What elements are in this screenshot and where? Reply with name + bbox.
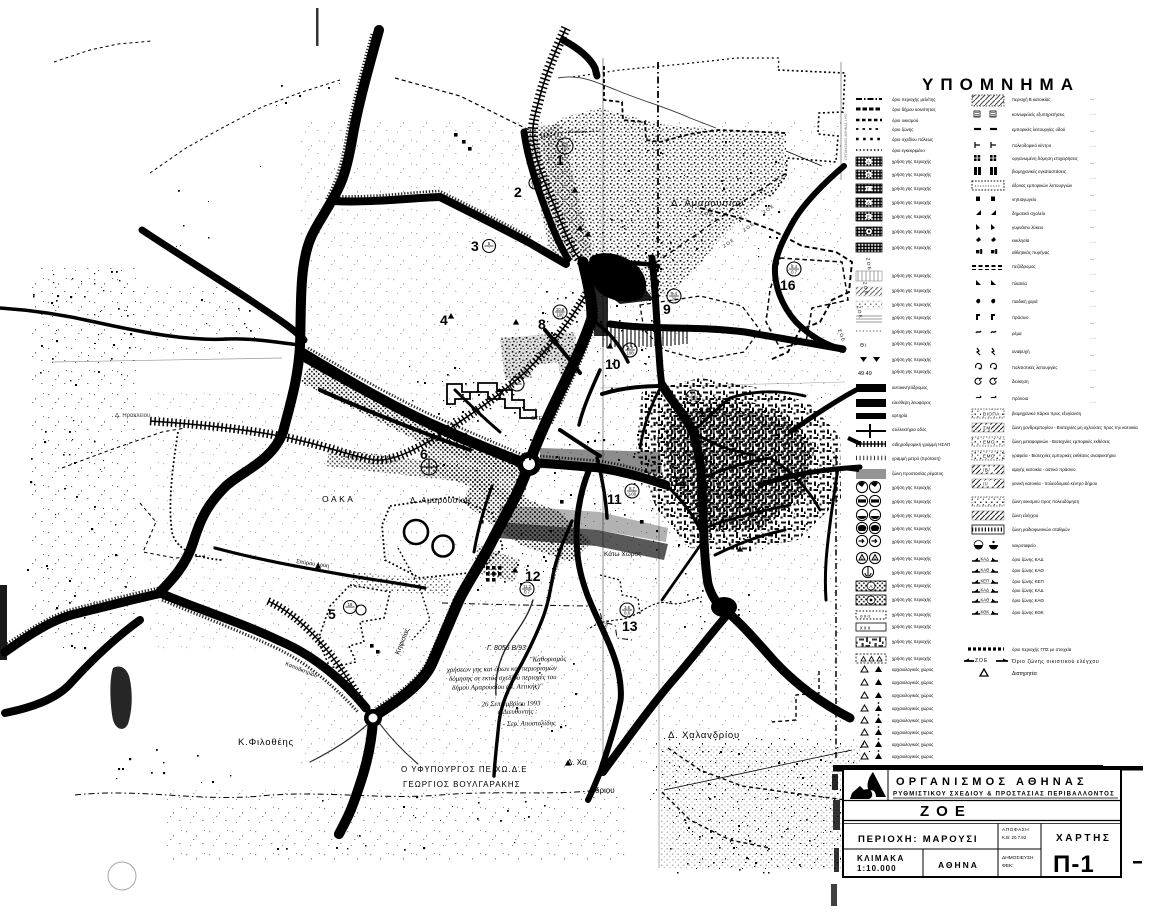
svg-text:ΚΘΚ: ΚΘΚ — [981, 609, 990, 614]
svg-text:— ·: — · — [1090, 128, 1096, 133]
svg-text:100: 100 — [532, 183, 540, 188]
svg-text:100: 100 — [627, 350, 635, 355]
svg-text:· · ·: · · · — [1090, 400, 1096, 405]
svg-text:παιδική χαρά: παιδική χαρά — [1012, 299, 1038, 304]
svg-text:— ·: — · — [1090, 192, 1096, 197]
svg-text:· · ·: · · · — [1090, 368, 1096, 373]
svg-text:αρχαιολογικός χώρος: αρχαιολογικός χώρος — [892, 730, 933, 735]
svg-text:αμιγής κατοικία - αστικό πράσι: αμιγής κατοικία - αστικό πράσινο — [1012, 467, 1076, 472]
svg-text:ΓΕΩΡΓΙΟΣ ΒΟΥΛΓΑΡΑΚΗΣ: ΓΕΩΡΓΙΟΣ ΒΟΥΛΓΑΡΑΚΗΣ — [403, 780, 521, 789]
svg-text:δημοτικό σχολείο: δημοτικό σχολείο — [1012, 211, 1046, 216]
svg-text:E: E — [867, 215, 870, 221]
svg-text:χρήση γης περιοχής: χρήση γης περιοχής — [892, 357, 931, 362]
svg-text:όριο ζώνης ΚΕΠ: όριο ζώνης ΚΕΠ — [1012, 579, 1044, 584]
svg-text:χρήση γης περιοχής: χρήση γης περιοχής — [892, 499, 931, 504]
svg-text:— ·: — · — [1090, 320, 1096, 325]
svg-text:διοίκηση: διοίκηση — [1012, 379, 1029, 384]
svg-text:8: 8 — [538, 316, 546, 332]
svg-text:ΚΑΔ: ΚΑΔ — [981, 556, 990, 561]
svg-text:αυτοκινητόδρομος: αυτοκινητόδρομος — [892, 385, 928, 390]
svg-text:Κάτω Χώρος: Κάτω Χώρος — [604, 550, 641, 558]
svg-text:4: 4 — [440, 312, 448, 328]
svg-text:· · ·: · · · — [1090, 144, 1096, 149]
svg-text:ΟΤΕ: ΟΤΕ — [531, 416, 543, 422]
svg-text:Κ.Β: 20.7.92: Κ.Β: 20.7.92 — [1002, 835, 1027, 840]
svg-text:"Καθορισμός: "Καθορισμός — [530, 655, 567, 664]
svg-text:σιδηροδρομική γραμμή ΗΣΑΠ: σιδηροδρομική γραμμή ΗΣΑΠ — [892, 442, 950, 447]
svg-text:ΥΠΟΜΝΗΜΑ: ΥΠΟΜΝΗΜΑ — [922, 75, 1080, 94]
svg-text:ρέμα: ρέμα — [1012, 331, 1022, 336]
svg-text:γραφεία - Βιοτεχνίες εμπορικές: γραφεία - Βιοτεχνίες εμπορικές εκθέσεις … — [1012, 453, 1116, 458]
svg-text:ΑΠΟΦΑΣΗ: ΑΠΟΦΑΣΗ — [1002, 827, 1029, 833]
svg-text:· · ·: · · · — [1090, 176, 1096, 181]
svg-text:γενική κατοικία - πολεοδομικό: γενική κατοικία - πολεοδομικό κέντρο δήμ… — [1012, 481, 1098, 486]
svg-text:Δ. Ηρακλείου: Δ. Ηρακλείου — [115, 413, 150, 419]
svg-text:Διατηρητέα: Διατηρητέα — [1012, 670, 1037, 677]
svg-text:100: 100 — [557, 312, 565, 317]
svg-text:18: 18 — [348, 602, 353, 607]
svg-text:ζώνη μεταφορικών - Βιοτεχνίες: ζώνη μεταφορικών - Βιοτεχνίες εμπορικές … — [1012, 439, 1110, 444]
svg-text:— ·: — · — [1090, 256, 1096, 261]
svg-text:πεζόδρομος: πεζόδρομος — [1012, 264, 1036, 269]
svg-text:χρήση γης περιοχής: χρήση γης περιοχής — [892, 556, 931, 561]
svg-text:ΦΕΚ:: ΦΕΚ: — [1002, 863, 1014, 869]
svg-text:αρχαιολογικός χώρος: αρχαιολογικός χώρος — [892, 667, 933, 672]
svg-text:5: 5 — [328, 606, 336, 622]
svg-text:0.6: 0.6 — [624, 610, 630, 615]
svg-text:0.7: 0.7 — [791, 269, 797, 274]
svg-text:χρήση γης περιοχής: χρήση γης περιοχής — [892, 583, 931, 588]
svg-text:χρήση γης περιοχής: χρήση γης περιοχής — [892, 273, 931, 278]
svg-text:ζώνη ελέγχου: ζώνη ελέγχου — [1012, 513, 1039, 518]
svg-text:χρήση γης περιοχής: χρήση γης περιοχής — [892, 539, 931, 544]
svg-text:όριο σχεδίου πόλεως: όριο σχεδίου πόλεως — [892, 137, 933, 142]
svg-text:όριο ζώνης ΚΑΔ: όριο ζώνης ΚΑΔ — [1012, 588, 1043, 593]
svg-text:χρήση γης περιοχής: χρήση γης περιοχής — [892, 200, 931, 205]
svg-text:ΠΕΡΙΟΧΗ: ΜΑΡΟΥΣΙ: ΠΕΡΙΟΧΗ: ΜΑΡΟΥΣΙ — [858, 834, 978, 845]
svg-text:Όριο ζώνης οικιστικού ελέγχ: Όριο ζώνης οικιστικού ελέγχου — [1011, 658, 1099, 665]
svg-text:10.8: 10.8 — [556, 307, 565, 312]
svg-text:όριο ζώνης ΚΘΚ: όριο ζώνης ΚΘΚ — [1012, 610, 1044, 615]
svg-text:ΚΛΙΜΑΚΑ: ΚΛΙΜΑΚΑ — [857, 854, 905, 863]
svg-text:7.2: 7.2 — [690, 392, 696, 397]
svg-text:· · ·: · · · — [1090, 240, 1096, 245]
svg-text:όριο περιοχής μελέτης: όριο περιοχής μελέτης — [892, 97, 935, 102]
svg-text:βιομηχανικό πάρκο προς εξυγίαν: βιομηχανικό πάρκο προς εξυγίανση — [1012, 411, 1082, 416]
svg-text:χρήση γης περιοχής: χρήση γης περιοχής — [892, 302, 931, 307]
svg-text:ΠΕΥΚΕΛΙΑ: ΠΕΥΚΕΛΙΑ — [566, 129, 586, 134]
svg-text:ζώνη χονδρεμπορίου - Βιοτεχνίε: ζώνη χονδρεμπορίου - Βιοτεχνίες μη οχλού… — [1012, 425, 1138, 430]
svg-text:αρχαιολογικός χώρος: αρχαιολογικός χώρος — [892, 754, 933, 759]
svg-text:αρχαιολογικός χώρος: αρχαιολογικός χώρος — [892, 742, 933, 747]
svg-text:11.9: 11.9 — [531, 178, 540, 183]
svg-text:χρήση γης περιοχής: χρήση γης περιοχής — [892, 485, 931, 490]
svg-text:11: 11 — [607, 491, 622, 507]
svg-text:όριο ζώνης ΚΑΘ: όριο ζώνης ΚΑΘ — [1012, 568, 1044, 573]
svg-text:Θ i: Θ i — [860, 343, 866, 349]
svg-text:αρχαιολογικός χώρος: αρχαιολογικός χώρος — [892, 706, 933, 711]
svg-text:ζώνη ραδιοφωνικών σταθμών: ζώνη ραδιοφωνικών σταθμών — [1012, 527, 1071, 532]
svg-text:A: A — [861, 556, 864, 561]
svg-text:— ·: — · — [1090, 384, 1096, 389]
svg-text:1:10.000: 1:10.000 — [857, 864, 897, 873]
svg-text:2: 2 — [514, 184, 522, 200]
svg-text:29: 29 — [672, 296, 677, 301]
svg-text:ΕΜΟ: ΕΜΟ — [983, 454, 995, 459]
svg-text:Π-1: Π-1 — [1053, 851, 1095, 878]
svg-text:γυμνάσιο λύκειο: γυμνάσιο λύκειο — [1012, 225, 1044, 230]
svg-text:ΚΑΔ: ΚΑΔ — [981, 587, 990, 592]
svg-text:δήμου Αμαρουσίου (Ν. Αττικής)": δήμου Αμαρουσίου (Ν. Αττικής)" — [452, 682, 543, 692]
svg-text:άξονας εμπορικών λειτουργιών: άξονας εμπορικών λειτουργιών — [1012, 183, 1073, 188]
svg-text:δριου: δριου — [595, 786, 615, 795]
svg-text:13: 13 — [622, 618, 638, 634]
svg-text:χρήση γης περιοχής: χρήση γης περιοχής — [892, 288, 931, 293]
svg-text:όριο περιοχής ΓΠΣ με στοιχεία: όριο περιοχής ΓΠΣ με στοιχεία — [1012, 647, 1072, 652]
svg-text:100: 100 — [562, 146, 570, 151]
svg-text:A: A — [874, 556, 877, 561]
svg-text:15: 15 — [698, 404, 714, 420]
svg-text:8.7: 8.7 — [629, 486, 635, 491]
svg-text:0.9: 0.9 — [748, 494, 754, 499]
svg-text:Σ.ΚΑΤ: Σ.ΚΑΤ — [540, 134, 553, 139]
svg-text:χρήση γης περιοχής: χρήση γης περιοχής — [892, 159, 931, 164]
svg-text:A: A — [869, 584, 872, 589]
svg-text:όριο δήμου κοινότητας: όριο δήμου κοινότητας — [892, 107, 936, 112]
svg-text:ΒΙΟΠΑ: ΒΙΟΠΑ — [983, 412, 1000, 417]
svg-text:αρχαιολογικός χώρος: αρχαιολογικός χώρος — [892, 693, 933, 698]
svg-text:χρήση γης περιοχής: χρήση γης περιοχής — [892, 341, 931, 346]
svg-text:ΚΑΘ: ΚΑΘ — [981, 597, 990, 602]
svg-text:χρήση γης περιοχής: χρήση γης περιοχής — [892, 624, 931, 629]
svg-text:ΟΡΓΑΝΙΣΜΟΣ ΑΘΗΝΑΣ 1992: ΟΡΓΑΝΙΣΜΟΣ ΑΘΗΝΑΣ 1992 — [844, 113, 848, 160]
svg-text:αθλητικός πυρήνας: αθλητικός πυρήνας — [1012, 250, 1049, 255]
svg-text:χρήση γης περιοχής: χρήση γης περιοχής — [892, 172, 931, 177]
svg-text:· · ·: · · · — [1090, 208, 1096, 213]
svg-text:ΡΥΘΜΙΣΤΙΚΟΥ ΣΧΕΔΙΟΥ & ΠΡΟΣΤΑΣΙ: ΡΥΘΜΙΣΤΙΚΟΥ ΣΧΕΔΙΟΥ & ΠΡΟΣΤΑΣΙΑΣ ΠΕΡΙΒΑΛ… — [893, 791, 1115, 798]
svg-text:14: 14 — [727, 485, 743, 501]
svg-text:εμπορικές λειτουργίες οδού: εμπορικές λειτουργίες οδού — [1012, 127, 1066, 132]
svg-text:11.2: 11.2 — [523, 584, 532, 589]
svg-text:3: 3 — [471, 238, 479, 254]
svg-text:ΕΜΟ: ΕΜΟ — [983, 440, 995, 445]
svg-text:- Σερ. Αποστολίδης: - Σερ. Αποστολίδης — [503, 719, 556, 728]
svg-text:βιομηχανικές εγκαταστάσεις: βιομηχανικές εγκαταστάσεις — [1012, 169, 1066, 174]
svg-text:χρήση γης περιοχής: χρήση γης περιοχής — [892, 597, 931, 602]
svg-text:γραμμή μετρό (πρόταση): γραμμή μετρό (πρόταση) — [892, 456, 941, 461]
svg-text:Ο ΥΦΥΠΟΥΡΓΟΣ ΠΕ.ΧΩ.Δ.Ε: Ο ΥΦΥΠΟΥΡΓΟΣ ΠΕ.ΧΩ.Δ.Ε — [401, 765, 528, 774]
svg-text:όριο ζώνης ΚΑΔ: όριο ζώνης ΚΑΔ — [1012, 557, 1043, 562]
svg-text:49 49: 49 49 — [858, 371, 872, 377]
svg-text:11: 11 — [672, 473, 687, 489]
svg-text:0.8: 0.8 — [690, 397, 696, 402]
svg-text:ΑΘΗΝΑ: ΑΘΗΝΑ — [938, 860, 979, 870]
svg-text:χρήση γης περιοχής: χρήση γης περιοχής — [892, 214, 931, 219]
svg-text:Δ. Αμαρουσιού: Δ. Αμαρουσιού — [671, 198, 744, 209]
svg-text:ΚΑΘ: ΚΑΘ — [981, 567, 990, 572]
svg-text:ο ο ο: ο ο ο — [860, 614, 871, 619]
svg-text:αρχαιολογικός χώρος: αρχαιολογικός χώρος — [892, 680, 933, 685]
svg-text:x x x: x x x — [860, 626, 871, 632]
svg-text:πρόνοια: πρόνοια — [1012, 396, 1029, 401]
svg-text:πράσινο: πράσινο — [1012, 315, 1029, 320]
svg-text:1: 1 — [556, 152, 564, 168]
svg-text:ΟΡΓΑΝΙΣΜΟΣ ΑΘΗΝΑΣ: ΟΡΓΑΝΙΣΜΟΣ ΑΘΗΝΑΣ — [896, 776, 1088, 788]
svg-text:/Β/: /Β/ — [983, 468, 990, 473]
svg-text:— ·: — · — [1090, 352, 1096, 357]
svg-text:αρχαιολογικός χώρος: αρχαιολογικός χώρος — [892, 718, 933, 723]
svg-text:περιοχή Β κατοικίας: περιοχή Β κατοικίας — [1012, 97, 1051, 102]
svg-text:Δ. Αμαρουσίου: Δ. Αμαρουσίου — [410, 496, 471, 505]
svg-text:όριο ζώνης: όριο ζώνης — [892, 127, 913, 132]
svg-text:0.7: 0.7 — [524, 589, 530, 594]
svg-text:7.2: 7.2 — [514, 379, 520, 384]
svg-text:ΖΟΕ: ΖΟΕ — [920, 803, 972, 820]
svg-text:B: B — [867, 173, 870, 179]
svg-text:— ·: — · — [1090, 224, 1096, 229]
svg-text:πλατεία: πλατεία — [1012, 281, 1027, 286]
svg-text:ΔΗΜΟΣΙΕΥΣΗ: ΔΗΜΟΣΙΕΥΣΗ — [1002, 855, 1034, 861]
svg-text:· · ·: · · · — [1090, 272, 1096, 277]
svg-text:αρτηρία: αρτηρία — [892, 413, 908, 418]
svg-text:νηπιαγωγείο: νηπιαγωγείο — [1012, 197, 1037, 202]
svg-text:χρήση γης περιοχής: χρήση γης περιοχής — [892, 315, 931, 320]
svg-text:εκκλησία: εκκλησία — [1012, 238, 1030, 243]
svg-text:χρήση γης περιοχής: χρήση γης περιοχής — [892, 245, 931, 250]
svg-text:7: 7 — [496, 387, 504, 403]
svg-text:χρήση γης περιοχής: χρήση γης περιοχής — [892, 570, 931, 575]
svg-text:— ·: — · — [1090, 96, 1096, 101]
svg-text:χρήση γης περιοχής: χρήση γης περιοχής — [892, 656, 931, 661]
svg-text:χρήση γης περιοχής: χρήση γης περιοχής — [892, 612, 931, 617]
svg-text:16: 16 — [780, 277, 796, 293]
svg-text:χρήση γης περιοχής: χρήση γης περιοχής — [892, 513, 931, 518]
svg-text:ζώνη οικισμού προς πολεοδόμηση: ζώνη οικισμού προς πολεοδόμηση — [1012, 499, 1080, 504]
svg-text:Γ: Γ — [867, 187, 870, 193]
svg-text:χρήση γης περιοχής: χρήση γης περιοχής — [892, 329, 931, 334]
svg-text:αναψυχή: αναψυχή — [1012, 349, 1030, 354]
svg-text:πολεοδομικό κέντρο: πολεοδομικό κέντρο — [1012, 143, 1052, 148]
svg-text:συλλεκτήρια οδός: συλλεκτήρια οδός — [892, 427, 927, 432]
svg-text:Κ.Φιλοθέης: Κ.Φιλοθέης — [238, 737, 294, 748]
svg-text:· · ·: · · · — [1090, 112, 1096, 117]
svg-text:χρήση γης περιοχής: χρήση γης περιοχής — [892, 186, 931, 191]
svg-text:1.00: 1.00 — [628, 491, 637, 496]
svg-text:8.4: 8.4 — [671, 291, 677, 296]
svg-text:6: 6 — [420, 446, 428, 462]
svg-text:7.8: 7.8 — [562, 141, 568, 146]
svg-text:· · ·: · · · — [1090, 304, 1096, 309]
svg-text:— ·: — · — [1090, 288, 1096, 293]
svg-text:πολιτιστικές λειτουργίες: πολιτιστικές λειτουργίες — [1012, 365, 1058, 370]
svg-text:ΣΜ: ΣΜ — [983, 426, 991, 431]
svg-text:ΖΟΕ: ΖΟΕ — [975, 658, 988, 664]
svg-text:ελεύθερη λεωφόρος: ελεύθερη λεωφόρος — [892, 400, 931, 405]
svg-text:— ·: — · — [1090, 160, 1096, 165]
svg-text:ΚΕΠ: ΚΕΠ — [981, 578, 990, 583]
svg-text:Δ. Χαλανδρίου: Δ. Χαλανδρίου — [668, 730, 740, 741]
svg-text:χρήση γης περιοχής: χρήση γης περιοχής — [892, 526, 931, 531]
svg-text:όριο ζώνης ΚΑΘ: όριο ζώνης ΚΑΘ — [1012, 598, 1044, 603]
svg-text:όριο εγκεκριμένο: όριο εγκεκριμένο — [892, 148, 925, 153]
svg-text:6.4: 6.4 — [791, 264, 797, 269]
svg-text:Δ. Χα: Δ. Χα — [567, 758, 587, 767]
svg-text:ΟΑΚΑ: ΟΑΚΑ — [322, 494, 355, 504]
svg-text:χρήση γης περιοχής: χρήση γης περιοχής — [892, 229, 931, 234]
svg-text:οργανωμένη δόμηση επιχειρήσεις: οργανωμένη δόμηση επιχειρήσεις — [1012, 156, 1078, 161]
svg-text:///: /// — [983, 482, 989, 487]
svg-text:όριο οικισμού: όριο οικισμού — [892, 118, 919, 123]
svg-text:6.4: 6.4 — [748, 489, 754, 494]
svg-text:χρήση γης περιοχής: χρήση γης περιοχής — [892, 639, 931, 644]
svg-text:ζώνη προστασίας ρέματος: ζώνη προστασίας ρέματος — [892, 471, 943, 476]
svg-text:Γ. 8056 Β/93: Γ. 8056 Β/93 — [487, 645, 526, 652]
svg-text:· · ·: · · · — [1090, 336, 1096, 341]
svg-text:3.6: 3.6 — [624, 605, 630, 610]
svg-text:νεκροταφείο: νεκροταφείο — [1012, 543, 1036, 548]
svg-text:9: 9 — [663, 301, 671, 317]
svg-text:χρήση γης περιοχής: χρήση γης περιοχής — [892, 369, 931, 374]
svg-text:ΧΑΡΤΗΣ: ΧΑΡΤΗΣ — [1056, 833, 1112, 844]
svg-text:κοινωφελείς εξυπηρετήσεις: κοινωφελείς εξυπηρετήσεις — [1012, 112, 1065, 117]
